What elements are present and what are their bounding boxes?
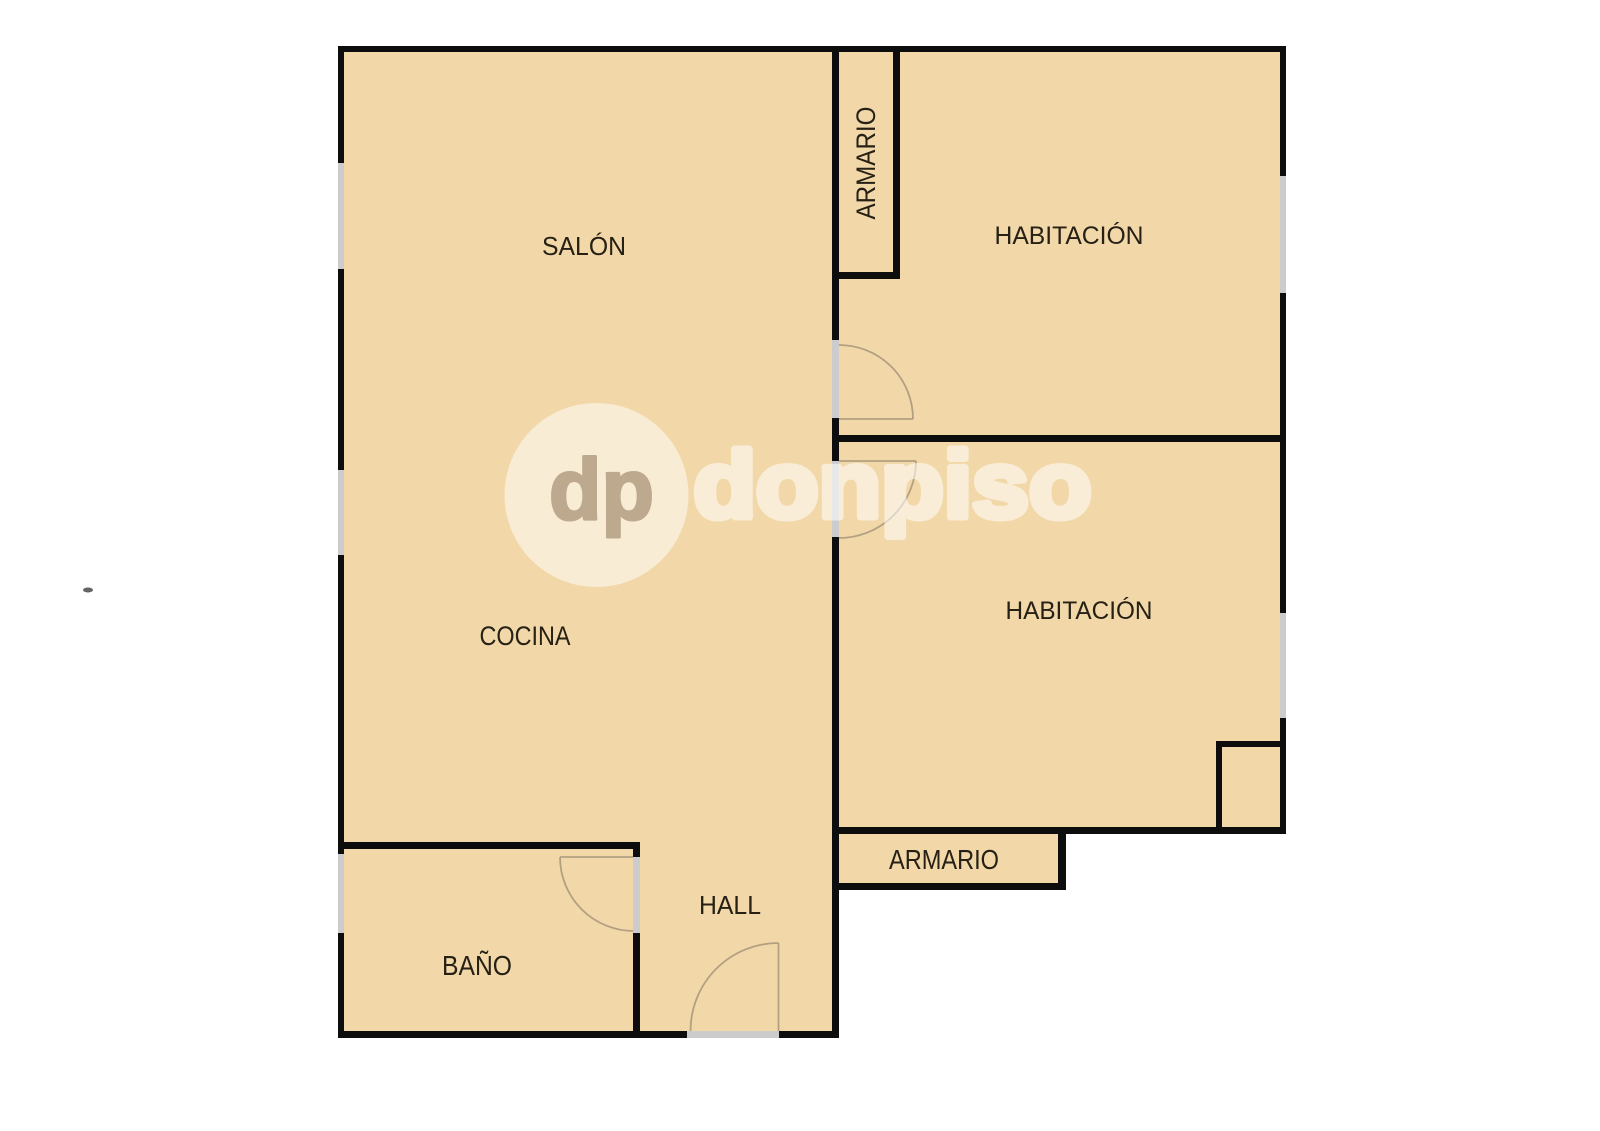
svg-text:BAÑO: BAÑO [442, 950, 512, 981]
svg-text:HABITACIÓN: HABITACIÓN [1006, 596, 1153, 625]
svg-text:SALÓN: SALÓN [542, 231, 626, 261]
svg-text:HALL: HALL [699, 890, 761, 920]
svg-text:dp: dp [549, 442, 654, 538]
svg-text:donpiso: donpiso [694, 432, 1092, 537]
svg-text:ARMARIO: ARMARIO [889, 844, 999, 875]
svg-text:HABITACIÓN: HABITACIÓN [995, 221, 1144, 250]
svg-text:COCINA: COCINA [480, 621, 571, 651]
svg-text:ARMARIO: ARMARIO [851, 107, 881, 220]
